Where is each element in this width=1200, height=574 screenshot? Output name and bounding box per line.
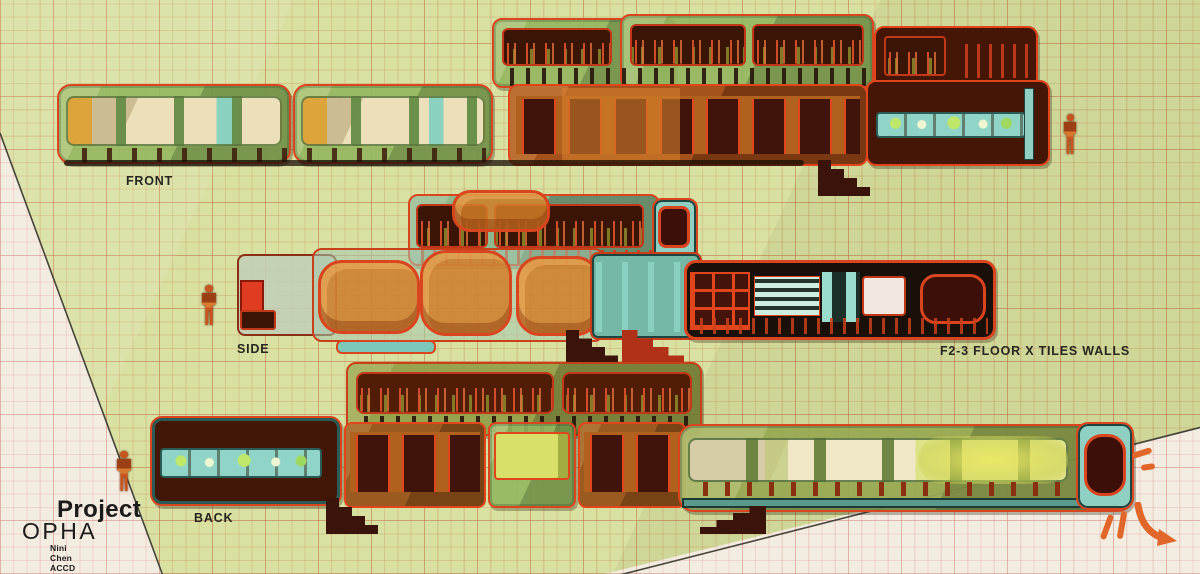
front-base-shadow <box>64 160 804 166</box>
side-black-slats <box>690 318 988 334</box>
side-black-louvers <box>754 276 820 316</box>
front-orange-door-panels <box>516 96 860 154</box>
side-deck-railing <box>412 250 658 264</box>
author-byline: Nini Chen ACCD SP24 <box>50 543 75 574</box>
front-main-orange-module <box>508 84 868 166</box>
side-black-red-grid <box>690 272 750 330</box>
back-view-label: BACK <box>194 511 233 525</box>
front-deck-window-2 <box>630 24 746 66</box>
back-main-module-2 <box>488 422 576 508</box>
front-main-windows-2 <box>301 96 485 146</box>
back-long-windows <box>688 438 1068 482</box>
back-module-1-panels <box>350 432 480 492</box>
concept-sheet: FRONT SIDE BACK F2-3 FLOOR X TILES WALLS… <box>0 0 1200 574</box>
front-main-railing <box>62 148 486 162</box>
back-end-cap <box>1076 422 1134 510</box>
front-main-windows-1 <box>66 96 282 146</box>
front-main-dark-module <box>866 80 1050 166</box>
back-end-window <box>1084 434 1126 496</box>
front-orange-center-bay <box>562 88 680 162</box>
side-black-white-window <box>862 276 906 316</box>
hand-dash-2 <box>1141 463 1156 471</box>
side-left-red-block <box>240 280 264 314</box>
side-deck-module <box>408 194 660 266</box>
side-sofa-blob-1 <box>318 260 420 334</box>
back-elevation-drawing <box>0 0 1200 574</box>
back-long-base <box>682 498 1124 508</box>
side-deck-end-window <box>658 206 690 248</box>
side-deck-window-2 <box>494 204 644 248</box>
front-deck-railing <box>498 68 868 86</box>
back-stairs-1 <box>326 498 378 534</box>
side-main-glass-left <box>237 254 337 336</box>
side-mid-teal-module <box>590 252 702 340</box>
front-deck-window-3 <box>752 24 864 66</box>
back-deck-module <box>346 362 702 436</box>
floor-tiles-annotation: F2-3 FLOOR X TILES WALLS <box>940 344 1130 358</box>
front-upper-right-window <box>884 36 946 76</box>
back-module-2-window <box>494 432 570 480</box>
back-dark-counter <box>160 448 322 478</box>
front-deck-window-1 <box>502 28 612 66</box>
side-deck-end-module <box>652 198 698 264</box>
back-long-glow <box>918 436 1068 484</box>
scale-figure-back <box>115 451 133 491</box>
back-long-posts <box>686 482 1076 496</box>
front-dark-pipe <box>1024 88 1034 160</box>
hand-slash-1 <box>1100 514 1115 540</box>
front-stairs <box>818 160 870 196</box>
project-name: OPHA <box>22 518 97 545</box>
side-sofa-blob-3 <box>516 256 600 336</box>
side-main-black-module <box>684 260 996 340</box>
side-sofa-blob-2 <box>420 250 512 336</box>
side-view-label: SIDE <box>237 342 269 356</box>
side-elevation-drawing <box>0 0 1200 574</box>
back-deck-window-1 <box>356 372 554 414</box>
front-main-module-2 <box>293 84 493 164</box>
front-view-label: FRONT <box>126 174 173 188</box>
side-left-dark-window <box>240 310 276 330</box>
side-red-stairs <box>622 330 684 364</box>
back-main-dark-module <box>150 416 342 506</box>
drawing-canvas <box>0 0 1200 574</box>
front-upper-right-slats <box>956 44 1032 78</box>
back-deck-railing <box>352 416 698 432</box>
front-dark-counter <box>876 112 1026 138</box>
side-deck-window-1 <box>416 204 488 248</box>
back-stairs-2 <box>700 506 766 534</box>
front-elevation-drawing <box>0 0 1200 574</box>
scale-figure-side <box>200 285 218 325</box>
back-main-long-module <box>678 424 1134 512</box>
front-deck-module-right <box>620 14 874 88</box>
front-main-module-1 <box>57 84 291 164</box>
side-mid-posts <box>596 262 696 332</box>
side-skid <box>336 340 436 354</box>
side-stairs <box>566 330 618 364</box>
front-deck-module-left <box>492 18 676 88</box>
back-deck-window-2 <box>562 372 692 414</box>
hand-dash-1 <box>1132 447 1153 459</box>
back-module-3-panels <box>584 432 680 492</box>
hand-drawn-arrow-icon <box>1126 502 1182 554</box>
side-sofa-blob-top <box>452 190 550 232</box>
scale-figure-front <box>1062 114 1078 154</box>
side-black-dark-window <box>920 274 986 324</box>
front-upper-right-module <box>874 26 1038 88</box>
back-main-module-1 <box>344 422 486 508</box>
side-main-glass-mid <box>312 248 604 342</box>
back-main-module-3 <box>578 422 686 508</box>
side-black-teal-panels <box>822 272 860 322</box>
